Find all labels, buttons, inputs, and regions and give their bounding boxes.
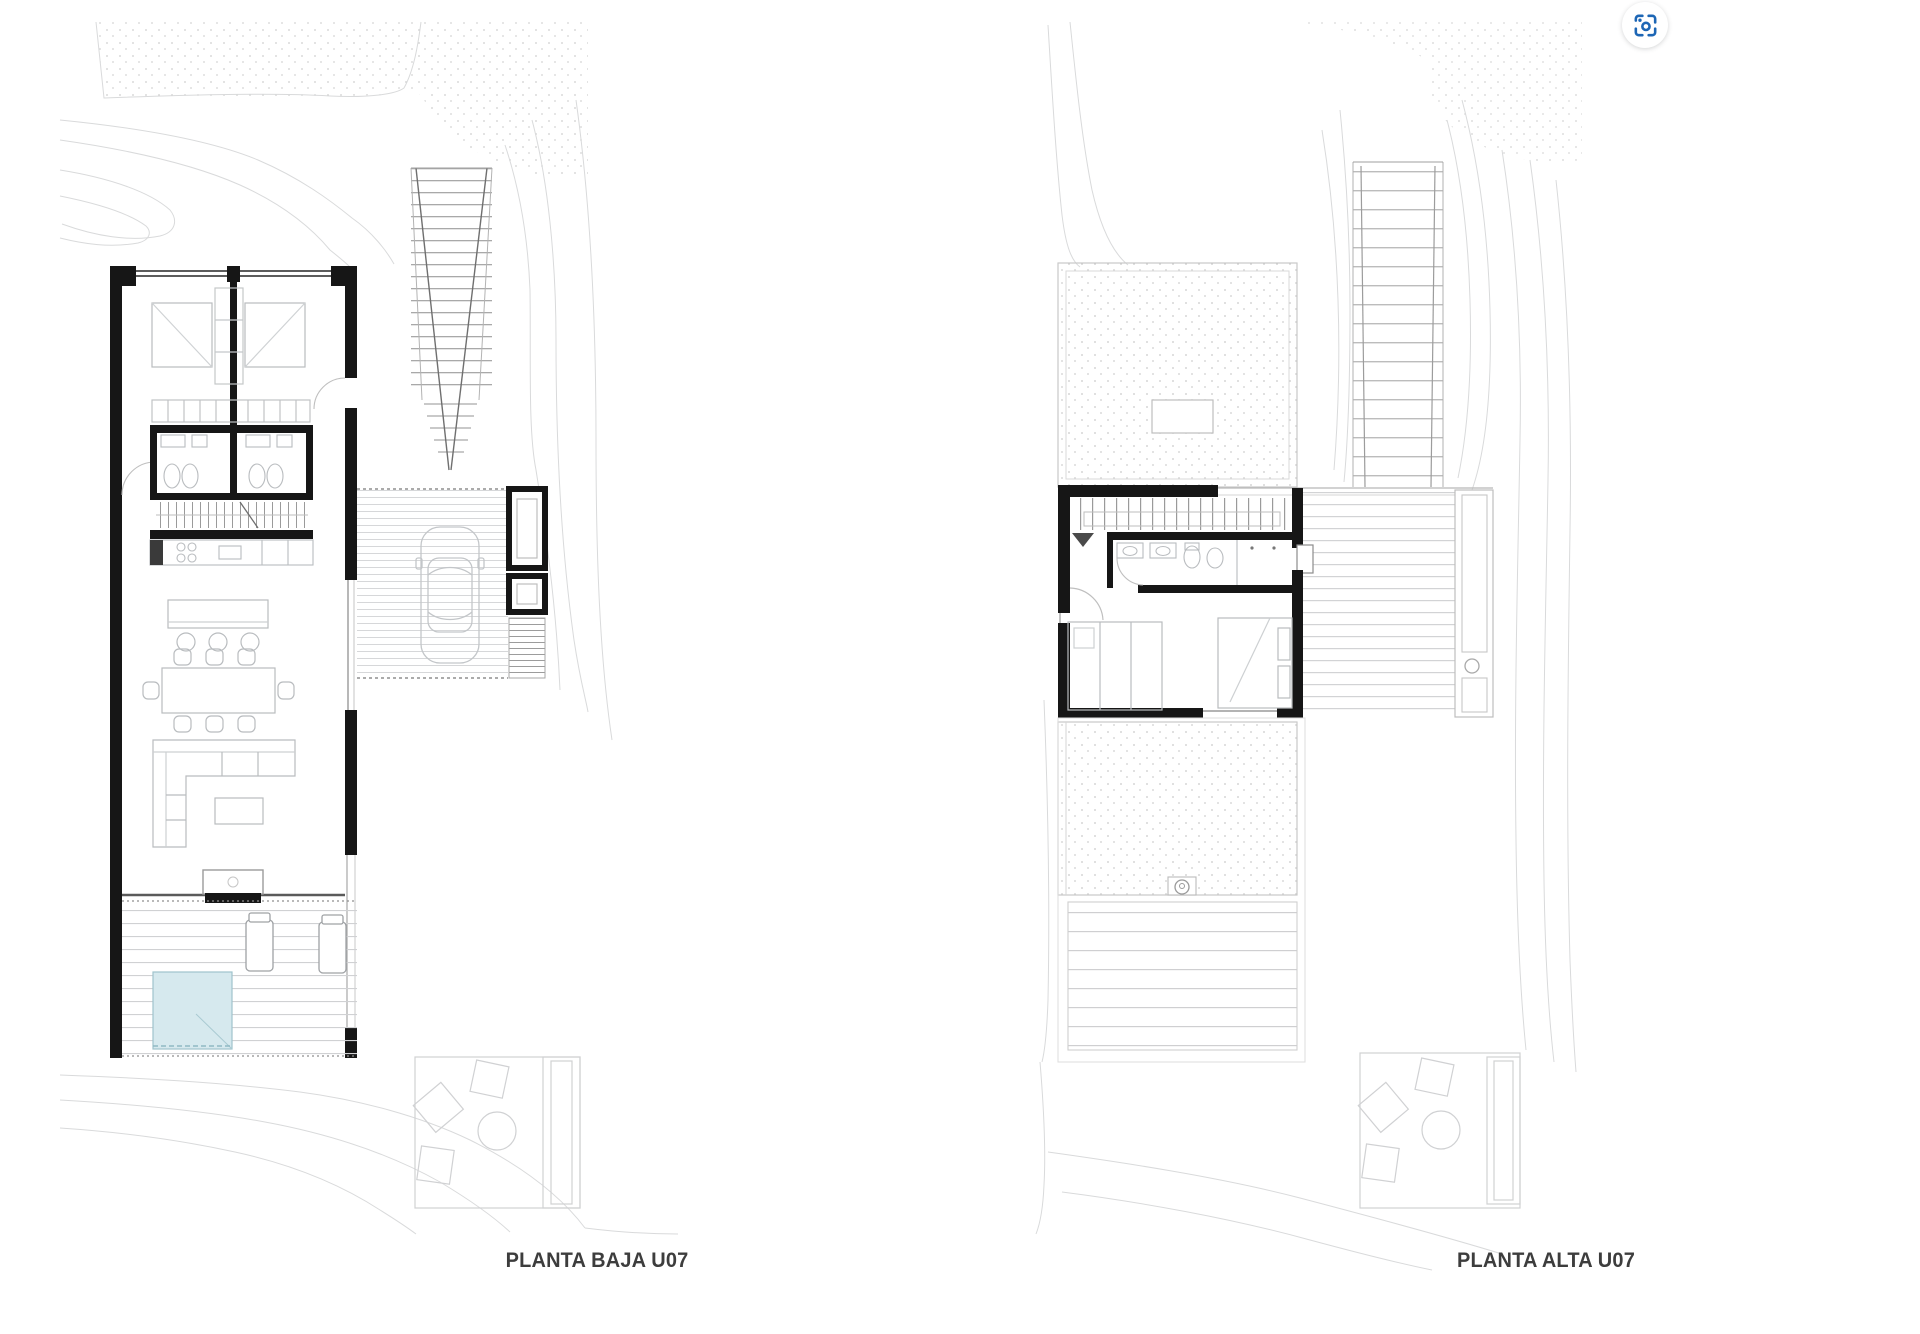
plan-upper-drawing	[1036, 18, 1582, 1270]
living-sofa	[153, 740, 295, 847]
upper-bedroom	[1068, 588, 1292, 710]
site-stair-upper	[1353, 162, 1443, 487]
kitchen	[150, 540, 313, 565]
google-lens-icon	[1632, 12, 1659, 39]
terrace-ground	[122, 901, 357, 1056]
upper-bathroom	[1117, 540, 1276, 585]
interior-stair-ground	[150, 502, 313, 539]
patio-ground	[413, 1057, 580, 1208]
carport-deck	[357, 489, 508, 679]
floor-plans-drawing	[0, 0, 1920, 1334]
pool	[153, 972, 232, 1049]
plan-ground-drawing	[60, 18, 678, 1234]
lower-court	[1058, 722, 1297, 895]
plan-upper-label: PLANTA ALTA U07	[1457, 1247, 1635, 1275]
floor-plans-page: PLANTA BAJA U07 PLANTA ALTA U07	[0, 0, 1920, 1334]
carport-storage	[509, 489, 545, 678]
lens-button[interactable]	[1622, 2, 1668, 48]
site-stair-ground	[411, 168, 492, 470]
fireplace-bench	[203, 870, 263, 903]
patio-upper	[1358, 1053, 1520, 1208]
roof-garden	[1058, 263, 1297, 487]
plan-ground-label: PLANTA BAJA U07	[506, 1247, 689, 1275]
dining-set	[143, 649, 294, 732]
bathrooms	[150, 425, 313, 500]
kitchen-island	[168, 600, 268, 651]
